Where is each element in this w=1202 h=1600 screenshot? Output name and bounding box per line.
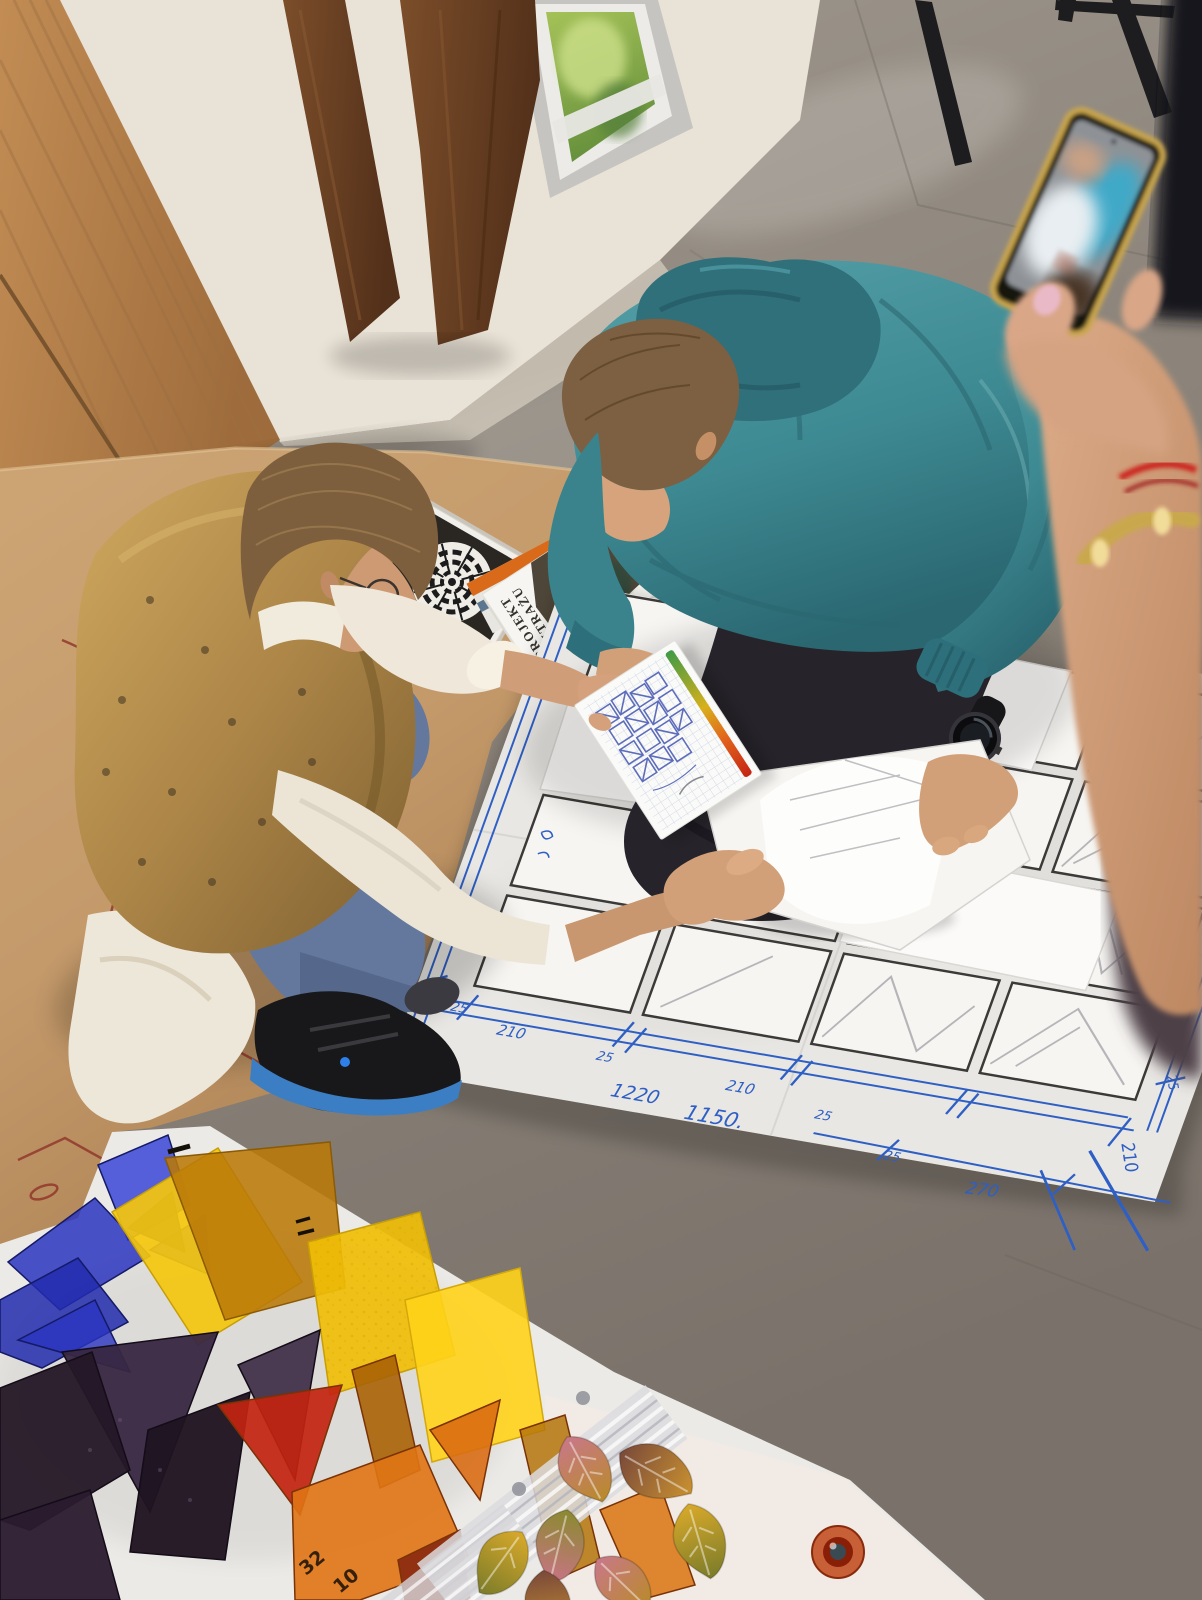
sneaker-logo <box>340 1057 350 1067</box>
glass-rondel <box>812 1526 864 1578</box>
strip-hole <box>512 1482 526 1496</box>
strip-hole <box>576 1391 590 1405</box>
dim-label: 270 <box>963 1179 1001 1202</box>
workshop-photo: PROJEKT WITRAŻU <box>0 0 1202 1600</box>
